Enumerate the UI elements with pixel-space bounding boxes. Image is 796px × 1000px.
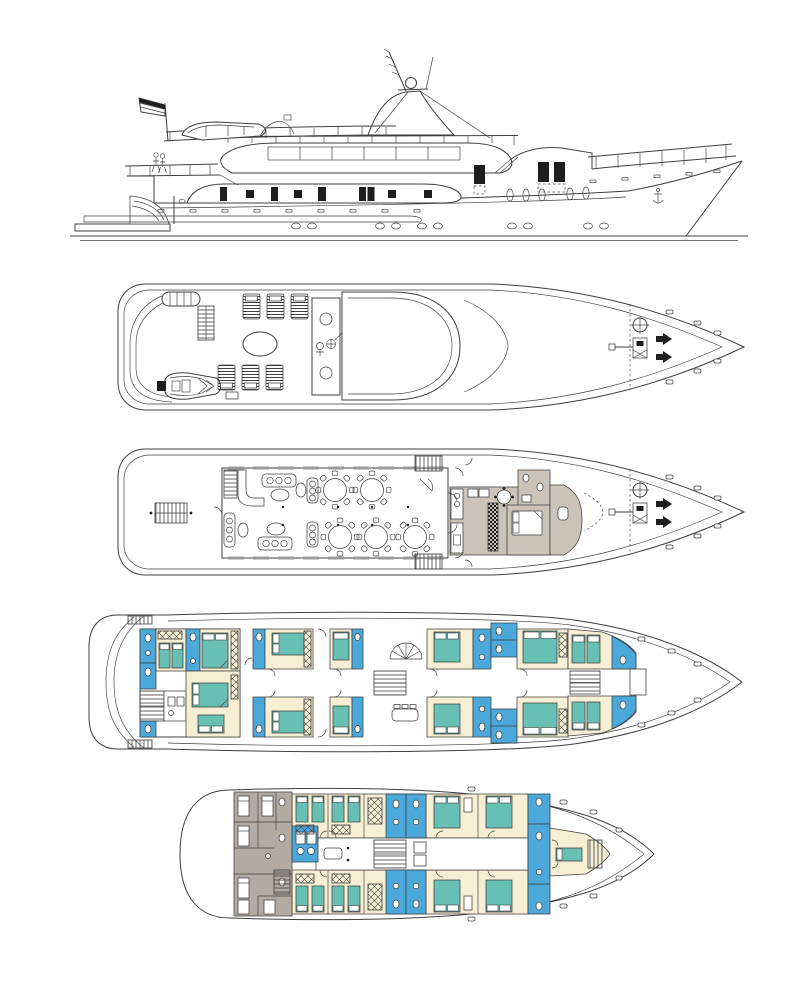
forward-double-cabins xyxy=(517,629,568,737)
helm-console xyxy=(558,507,568,520)
bow-twin-cabins xyxy=(568,629,646,736)
sunpad-area xyxy=(342,292,508,400)
flag xyxy=(139,98,168,141)
helm-station xyxy=(312,298,342,395)
midship-cabins-second-pair xyxy=(330,629,363,737)
central-lobby xyxy=(374,643,422,721)
crew-stairs xyxy=(274,870,290,894)
liferaft xyxy=(162,292,200,306)
salon-stairs xyxy=(224,470,237,498)
aft-cabin-cluster xyxy=(140,629,240,737)
waterline xyxy=(70,236,748,241)
sun-lounger xyxy=(291,294,308,319)
bench xyxy=(307,478,318,503)
upper-deck xyxy=(221,136,518,174)
bow-hatch xyxy=(630,669,646,695)
sun-lounger xyxy=(242,365,259,390)
people-figures xyxy=(152,153,167,173)
aft-decks-and-people xyxy=(125,153,238,185)
sun-deck-plan xyxy=(110,280,750,415)
main-deck-superstructure xyxy=(187,184,461,203)
spiral-stair xyxy=(390,643,422,659)
sun-lounger xyxy=(266,365,283,390)
radar-mast xyxy=(368,49,490,138)
main-deck-plan xyxy=(110,445,750,580)
anchor-windlass xyxy=(609,304,672,390)
yacht-deck-plan-sheet xyxy=(0,0,796,1000)
side-table xyxy=(296,483,306,497)
bridge-front xyxy=(584,493,603,531)
bow-cabin xyxy=(528,824,610,884)
midship-cabins-aft-pair xyxy=(253,629,313,737)
cabin-deck-plan xyxy=(82,605,750,760)
bow-stairs xyxy=(588,840,602,868)
sun-lounger xyxy=(267,294,284,319)
anchor-windlass xyxy=(609,469,672,555)
captain-cabin-bed xyxy=(512,511,542,535)
galley-and-service xyxy=(450,470,603,555)
top-deck xyxy=(139,98,400,141)
anchor-icon xyxy=(653,189,663,204)
deck-table xyxy=(243,332,277,356)
stairs-sun-deck xyxy=(198,306,214,340)
crew-quarters xyxy=(234,792,292,916)
sun-lounger xyxy=(243,294,260,319)
bench xyxy=(307,522,318,547)
side-profile-view xyxy=(70,45,750,250)
sun-lounger xyxy=(218,365,235,390)
stern-stairs xyxy=(150,503,193,523)
lobby-sofa xyxy=(392,705,418,722)
midship-cabins-forward-pair xyxy=(427,623,517,743)
lower-deck-plan xyxy=(168,778,658,930)
bow-cleats xyxy=(666,475,721,549)
bow-cleats xyxy=(638,637,701,727)
bow-cleats xyxy=(666,310,721,384)
